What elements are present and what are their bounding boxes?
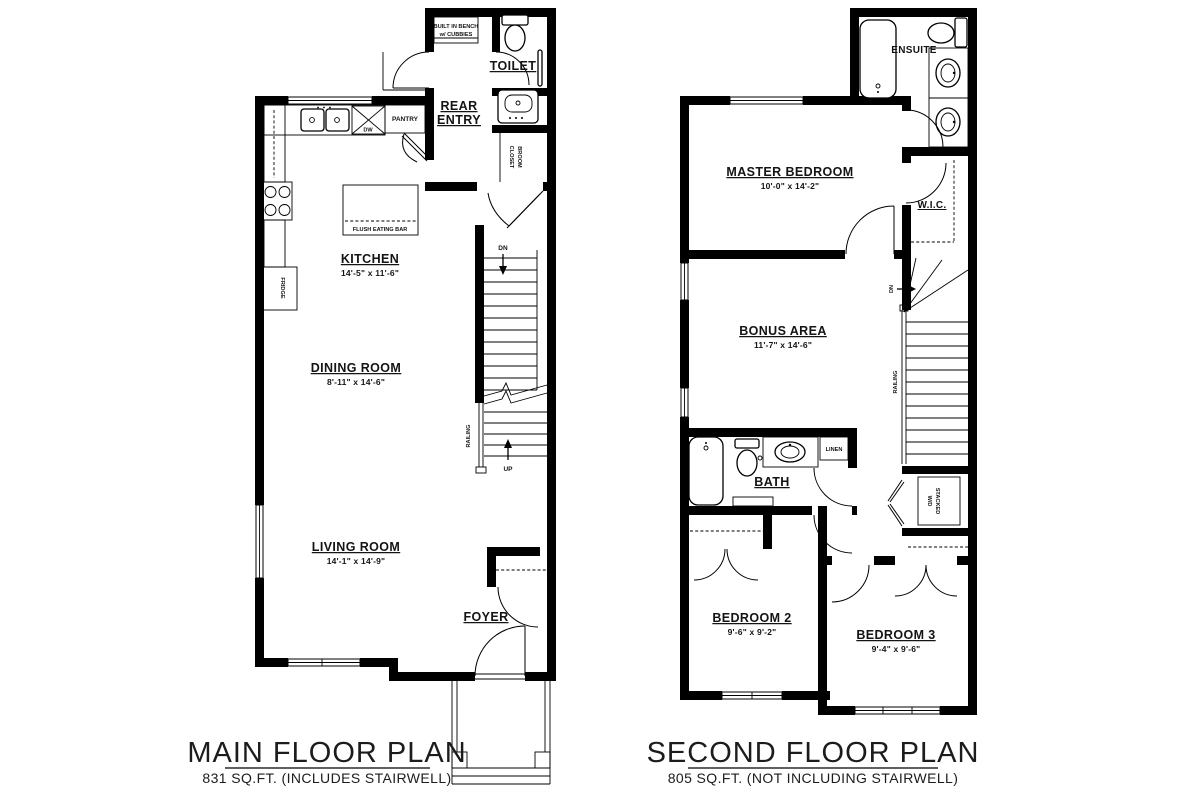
broom-closet-label-2: CLOSET [508,146,514,169]
living-room-dims: 14'-1" x 14'-9" [327,556,386,566]
bedroom-3-door [832,565,869,602]
railing-label-2: RAILING [893,371,899,394]
kitchen-island: FLUSH EATING BAR [343,185,418,235]
master-bedroom-label: MASTER BEDROOM [726,165,853,179]
back-door [383,52,429,90]
master-bedroom-door [846,206,894,254]
rear-entry-label-2: ENTRY [437,113,481,127]
master-bedroom-dims: 10'-0" x 14'-2" [761,181,820,191]
main-floor-plan: BUILT IN BENCH w/ CUBBIES BROOM CLOSET [187,8,556,786]
main-floor-subtitle: 831 SQ.FT. (INCLUDES STAIRWELL) [202,770,451,786]
second-floor-walls [680,8,977,715]
bedroom-2-closet [690,531,763,580]
dishwasher-label: DW [363,128,373,134]
stairs-up-label: UP [503,466,513,473]
second-floor-subtitle: 805 SQ.FT. (NOT INCLUDING STAIRWELL) [668,770,959,786]
linen-closet: LINEN [820,437,848,460]
kitchen-label: KITCHEN [341,252,399,266]
bath-mat [733,497,773,506]
pantry-label: PANTRY [392,116,419,123]
main-floor-title: MAIN FLOOR PLAN [187,737,466,769]
dining-room-label: DINING ROOM [311,361,402,375]
fridge: FRIDGE [262,267,297,310]
bedroom-2-dims: 9'-6" x 9'-2" [728,627,777,637]
ensuite-label: ENSUITE [891,45,936,56]
wic-label: W.I.C. [917,200,946,211]
bath-label: BATH [754,475,789,489]
rear-entry-label-1: REAR [440,99,477,113]
bedroom-3-dims: 9'-4" x 9'-6" [872,644,921,654]
flush-eating-bar-label: FLUSH EATING BAR [353,227,408,233]
dining-room-dims: 8'-11" x 14'-6" [327,377,385,387]
bath-tub [689,437,723,505]
second-floor-plan: ENSUITE W.I.C. [647,8,980,786]
stacked-washer-dryer: STACKED W/D [888,477,960,526]
second-floor-title: SECOND FLOOR PLAN [647,737,980,769]
pedestal-sink [498,90,538,123]
ensuite-vanity [929,48,968,147]
bedroom-3-closet [895,547,968,596]
kitchen-side-counter [264,105,285,267]
bonus-area-dims: 11'-7" x 14'-6" [754,340,812,350]
bonus-area-label: BONUS AREA [739,324,827,338]
stairs-dn-label-2: DN [889,285,895,293]
foyer-label: FOYER [463,610,508,624]
rear-entry-door [488,191,543,228]
bedroom-2-label: BEDROOM 2 [712,611,791,625]
broom-closet-label: BROOM [516,146,522,168]
walk-in-closet: W.I.C. [906,160,954,242]
floor-plan-sheet: BUILT IN BENCH w/ CUBBIES BROOM CLOSET [0,0,1200,800]
built-in-bench-label: BUILT IN BENCH [434,24,479,30]
living-room-label: LIVING ROOM [312,540,400,554]
railing-label: RAILING [466,425,472,448]
dishwasher: DW [352,106,385,134]
second-floor-stairs: RAILING DN [889,258,968,464]
stacked-wd-label-2: W/D [926,496,932,507]
fridge-label: FRIDGE [279,277,285,298]
stairs-dn-label: DN [498,245,508,252]
toilet-label: TOILET [490,59,537,73]
toilet-fixture [502,15,542,86]
front-porch [452,681,550,784]
bath-vanity [758,437,818,467]
front-door [475,626,525,679]
pantry: PANTRY [385,105,429,162]
ensuite-tub [860,20,896,98]
stove [262,182,292,220]
stacked-wd-label-1: STACKED [934,488,940,515]
floor-plans-canvas: BUILT IN BENCH w/ CUBBIES BROOM CLOSET [0,0,1200,800]
kitchen-dims: 14'-5" x 11'-6" [341,268,399,278]
broom-closet: BROOM CLOSET [500,133,522,182]
bath-toilet [735,439,759,476]
built-in-bench: BUILT IN BENCH w/ CUBBIES [434,17,479,43]
ensuite-toilet [928,18,967,47]
built-in-bench-label-2: w/ CUBBIES [439,32,473,38]
bedroom-3-label: BEDROOM 3 [856,628,935,642]
linen-label: LINEN [826,447,843,453]
bath-door [814,468,852,506]
